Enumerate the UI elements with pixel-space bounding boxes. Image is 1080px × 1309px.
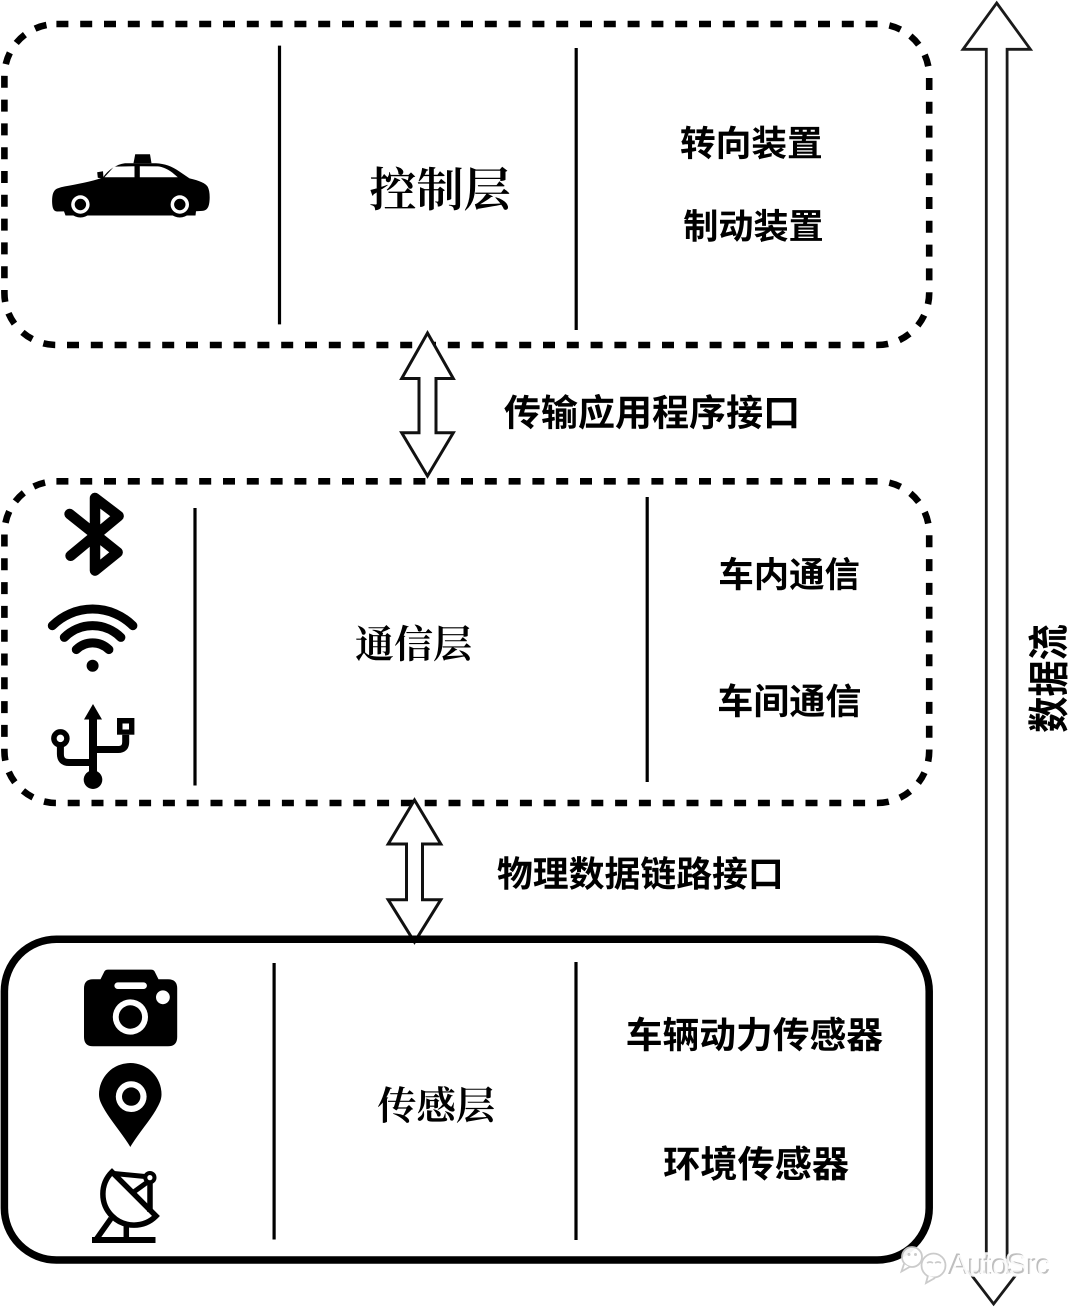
- svg-text:AutoSrc: AutoSrc: [950, 1250, 1051, 1283]
